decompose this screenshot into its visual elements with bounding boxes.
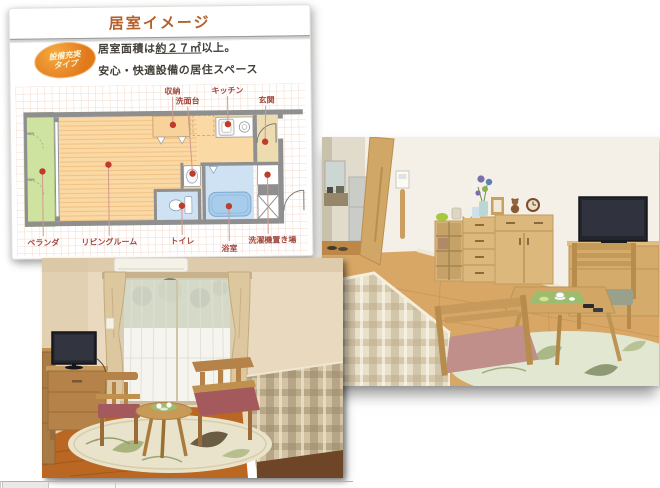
photo-window-side-image [42, 258, 343, 478]
tv [579, 197, 647, 244]
counter [324, 193, 348, 206]
rug [68, 415, 272, 473]
veranda-area [24, 112, 55, 226]
clock [526, 198, 540, 212]
label-laundry: 洗濯機置き場 [248, 234, 296, 245]
plate [539, 297, 549, 302]
room-plan-panel: 居室イメージ 設備充実 タイプ 居室面積は約２７㎡以上。 安心・快適設備の居住ス… [8, 4, 313, 260]
floor-plan: 収納 洗面台 キッチン 玄関 ベランダ リビングルーム トイレ 浴室 洗濯機置き… [15, 83, 307, 257]
window-symbol [55, 122, 60, 216]
basket [438, 238, 448, 249]
kitchen-counter [216, 117, 253, 137]
toilet-room [157, 192, 198, 220]
teacup [556, 293, 564, 298]
remote-control [583, 304, 594, 308]
label-washstand: 洗面台 [176, 96, 200, 106]
photo-living-room-image [322, 137, 659, 386]
blue-card [472, 207, 480, 218]
area-value: 約２７㎡ [155, 42, 201, 55]
label-entrance: 玄関 [259, 95, 275, 105]
page-title: 居室イメージ [9, 5, 309, 35]
scrollbar-divider[interactable] [115, 482, 116, 488]
entrance-area [257, 115, 279, 162]
label-veranda: ベランダ [27, 237, 59, 247]
window-bottom-border [0, 481, 353, 482]
label-living-room: リビングルーム [81, 236, 137, 247]
green-bowl [436, 213, 448, 221]
jar [452, 208, 461, 219]
page-canvas: 居室イメージ 設備充実 タイプ 居室面積は約２７㎡以上。 安心・快適設備の居住ス… [0, 0, 660, 488]
label-toilet: トイレ [170, 237, 194, 246]
control-panel [396, 171, 409, 188]
label-kitchen: キッチン [211, 86, 243, 95]
scrollbar-corner[interactable] [2, 482, 49, 488]
air-conditioner [114, 258, 188, 272]
badge-line2: タイプ [53, 59, 78, 71]
cubby-shelf [435, 221, 463, 281]
figurine [464, 206, 471, 218]
drawer-chest [463, 217, 495, 282]
shoes [327, 246, 337, 250]
sideboard-cabinet [495, 215, 553, 284]
label-storage: 収納 [164, 86, 180, 96]
wall-switch [106, 318, 114, 329]
bathroom [205, 165, 254, 220]
window-left-edge [0, 481, 1, 488]
room-area-text: 居室面積は約２７㎡以上。 [98, 39, 236, 57]
label-bathroom: 浴室 [221, 243, 237, 253]
comfort-text: 安心・快適設備の居住スペース [98, 61, 258, 79]
handrail [400, 189, 405, 239]
photo-window-side [42, 258, 343, 478]
photo-living-room [322, 137, 659, 386]
bed [247, 362, 343, 478]
equipment-type-badge: 設備充実 タイプ [32, 39, 98, 82]
